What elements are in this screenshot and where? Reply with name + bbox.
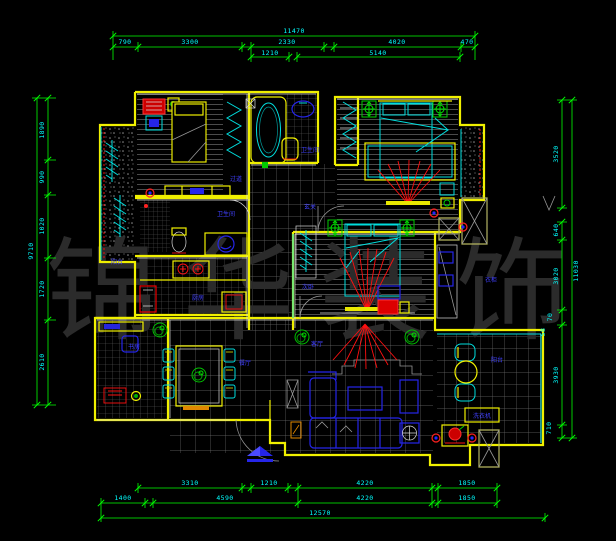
dim-bot-4220a: 4220 (356, 479, 373, 487)
floor-plan-canvas: 锦华装饰 阳台 卫生间 (0, 0, 616, 541)
dim-left-total: 9710 (27, 242, 35, 259)
dim-bot-total: 12570 (309, 509, 331, 517)
hall-label-1: 过道 (230, 175, 242, 183)
dim-right-70: 70 (546, 313, 554, 322)
dim-left-990: 990 (38, 171, 46, 184)
kitchen-label: 厨房 (192, 294, 204, 302)
dim-top-total: 11470 (283, 27, 305, 35)
dim-right-3020: 3020 (552, 267, 560, 284)
dim-top-790: 790 (119, 38, 132, 46)
dimensions-bottom: 3310 1210 4220 1850 1400 4590 4220 1850 … (98, 479, 548, 522)
dim-left-1720: 1720 (38, 280, 46, 297)
dim-bot-1850b: 1850 (458, 494, 475, 502)
dim-right-3930: 3930 (552, 366, 560, 383)
dim-right-total: 11030 (572, 260, 580, 282)
balcony-right-label: 阳台 (491, 356, 503, 364)
dim-bot-1400: 1400 (114, 494, 131, 502)
bed2-label: 次卧 (302, 283, 314, 291)
dimensions-top: 11470 790 3300 2330 4020 470 1210 5140 (110, 27, 478, 62)
bath1-label: 卫生间 (301, 146, 319, 154)
dim-left-1020: 1020 (38, 217, 46, 234)
dim-bot-4220b: 4220 (356, 494, 373, 502)
dim-right-710: 710 (545, 422, 553, 435)
dim-bot-3310: 3310 (181, 479, 198, 487)
dim-right-640: 640 (552, 224, 560, 237)
washer-label: 洗衣机 (473, 412, 491, 420)
dim-top-2330: 2330 (278, 38, 295, 46)
dim-top-5140: 5140 (369, 49, 386, 57)
dim-left-1890: 1890 (38, 121, 46, 138)
dim-top-4020: 4020 (388, 38, 405, 46)
dim-left-2610: 2610 (38, 353, 46, 370)
balcony-left-label: 阳台 (111, 258, 123, 266)
dining-label: 餐厅 (239, 359, 251, 367)
dim-bot-1850a: 1850 (458, 479, 475, 487)
dim-top-3300: 3300 (181, 38, 198, 46)
study-label: 书房 (128, 343, 140, 351)
dim-bot-4590: 4590 (216, 494, 233, 502)
hall-label-2: 玄关 (304, 203, 316, 211)
dim-bot-1210: 1210 (260, 479, 277, 487)
floor-plan-drawing: 锦华装饰 阳台 卫生间 (0, 0, 616, 541)
dim-top-470: 470 (461, 38, 474, 46)
dim-top-1210: 1210 (261, 49, 278, 57)
closet-label: 衣柜 (485, 276, 497, 284)
dim-right-58: 58 (539, 328, 547, 337)
bath2-label: 卫生间 (217, 210, 235, 218)
dim-right-3520: 3520 (552, 145, 560, 162)
living-label: 客厅 (311, 340, 323, 348)
